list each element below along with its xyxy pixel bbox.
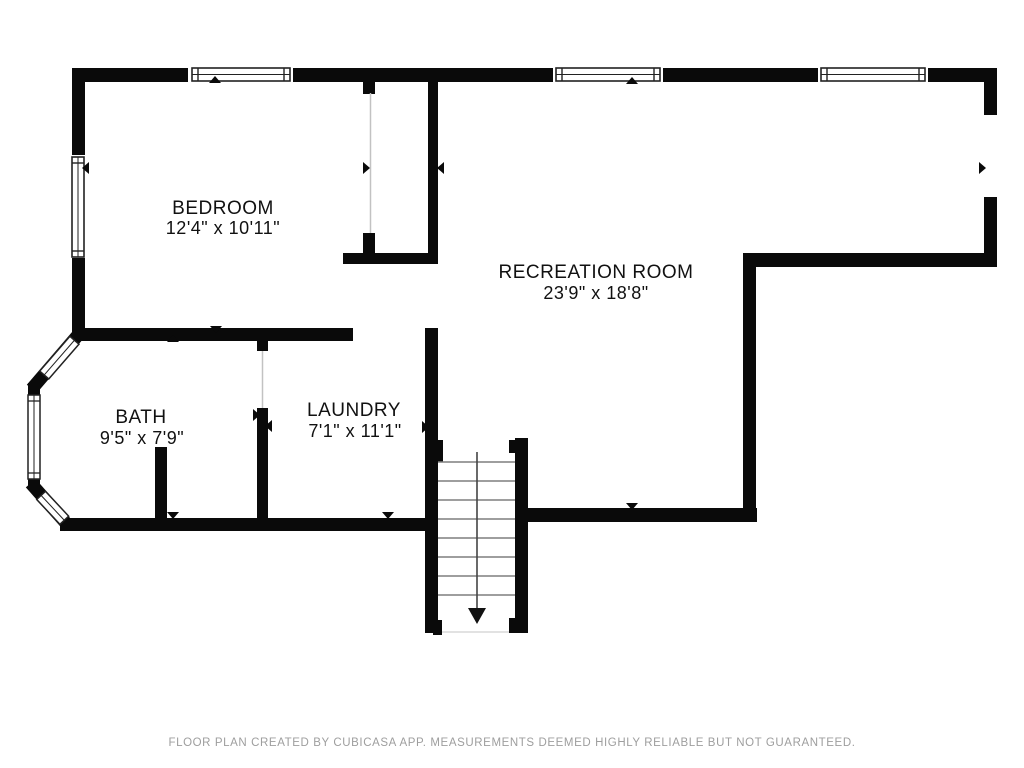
- wall-left-upper: [72, 68, 85, 155]
- wall-corridor-top-stub: [363, 82, 375, 94]
- wall-rec-right-lower: [743, 253, 756, 522]
- room-dims-bedroom: 12'4" x 10'11": [166, 218, 280, 238]
- wall-corridor-bottom-stub: [363, 233, 375, 253]
- wall-stair-right-top: [509, 440, 528, 453]
- room-dims-recreation: 23'9" x 18'8": [543, 283, 648, 303]
- opening-lines: [263, 93, 510, 632]
- window-rec-1: [553, 66, 663, 84]
- room-label-bath: BATH: [115, 407, 166, 428]
- room-dims-bath: 9'5" x 7'9": [100, 428, 184, 448]
- marker-rec-right-door: [979, 162, 986, 174]
- room-labels: BEDROOM 12'4" x 10'11" RECREATION ROOM 2…: [100, 198, 694, 448]
- room-label-bedroom: BEDROOM: [172, 198, 274, 219]
- marker-corridor-left: [363, 162, 370, 174]
- wall-stair-left-top: [437, 440, 443, 462]
- wall-divider-lower: [257, 408, 268, 518]
- wall-right-upper: [984, 68, 997, 115]
- room-label-laundry: LAUNDRY: [307, 400, 401, 421]
- footer-disclaimer: FLOOR PLAN CREATED BY CUBICASA APP. MEAS…: [168, 737, 855, 749]
- room-dims-laundry: 7'1" x 11'1": [308, 421, 401, 441]
- window-bedroom-left: [70, 155, 87, 258]
- wall-stair-right-bottom: [509, 618, 528, 633]
- marker-bottom-wall-right: [382, 512, 394, 519]
- floor-plan-svg: BEDROOM 12'4" x 10'11" RECREATION ROOM 2…: [0, 0, 1024, 768]
- wall-step: [743, 253, 997, 267]
- wall-top-b: [293, 68, 553, 82]
- wall-divider-stub: [257, 341, 268, 351]
- room-label-recreation: RECREATION ROOM: [498, 262, 693, 283]
- window-bay-upper: [40, 336, 79, 379]
- window-rec-2: [818, 66, 928, 84]
- wall-bedroom-bottom: [72, 328, 353, 341]
- wall-bottom: [60, 518, 438, 531]
- wall-rec-left: [428, 68, 438, 263]
- wall-stair-right: [515, 438, 528, 633]
- window-bay-lower: [37, 491, 69, 524]
- marker-triangles: [82, 76, 986, 519]
- walls-group: [28, 68, 997, 635]
- floor-plan-page: BEDROOM 12'4" x 10'11" RECREATION ROOM 2…: [0, 0, 1024, 768]
- wall-top-a: [72, 68, 188, 82]
- wall-top-c: [663, 68, 818, 82]
- window-bay-center: [28, 395, 40, 479]
- marker-bottom-wall-left: [167, 512, 179, 519]
- marker-corridor-right: [437, 162, 444, 174]
- wall-laundry-right: [425, 328, 438, 633]
- stairs: [438, 452, 515, 624]
- window-bedroom-top: [188, 66, 293, 84]
- wall-stair-left-foot: [433, 620, 442, 635]
- wall-bath-stub: [155, 447, 167, 518]
- wall-rec-bottom: [515, 508, 757, 522]
